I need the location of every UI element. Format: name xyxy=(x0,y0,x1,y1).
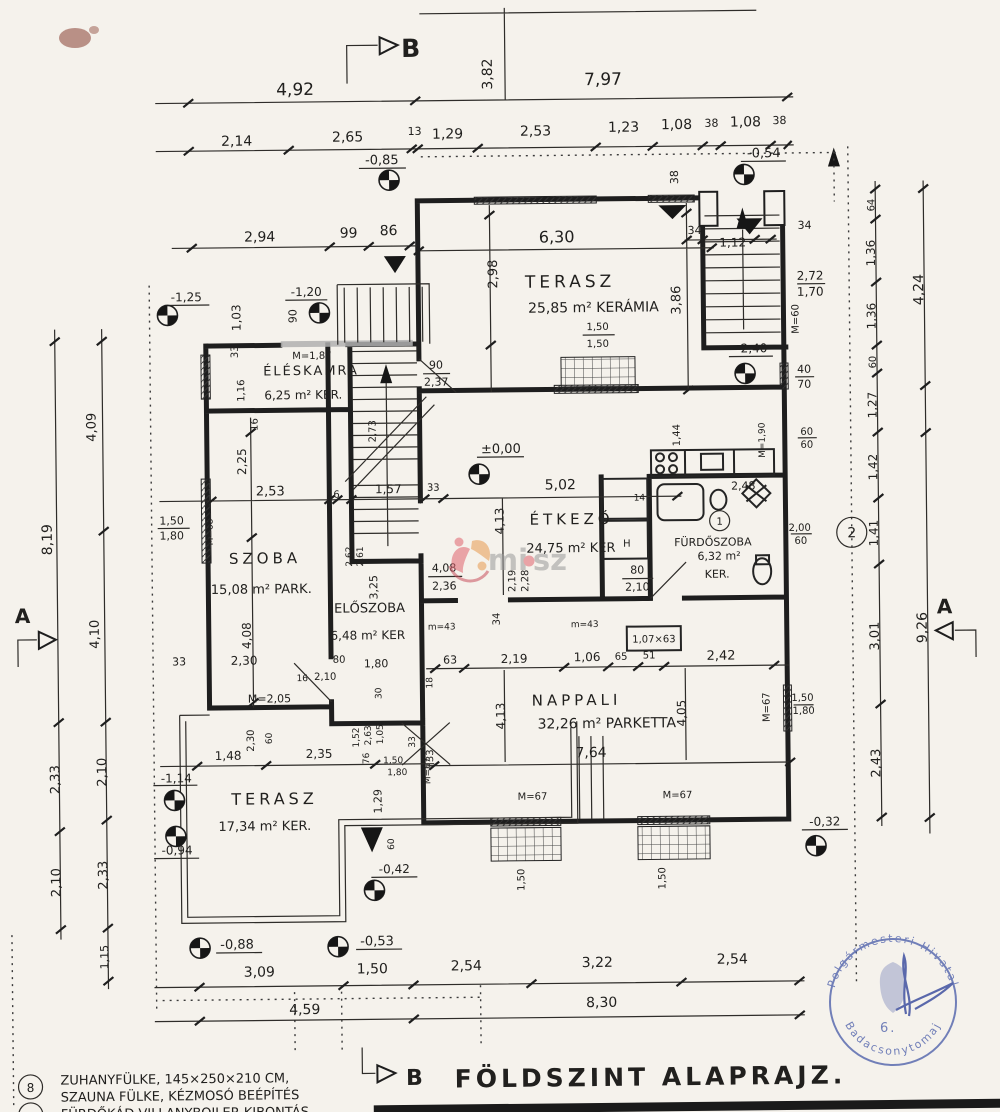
door-dim: 2,37 xyxy=(424,376,449,389)
level-label: -0,54 xyxy=(747,146,781,161)
level-label: -0,53 xyxy=(360,934,394,949)
dim-label: 1,44 xyxy=(672,424,683,446)
dim-label: 1,57 xyxy=(375,482,402,496)
dim-label: 5,02 xyxy=(545,477,576,493)
stove-burners xyxy=(656,453,677,473)
dim-label: 33 xyxy=(172,655,186,668)
dim-label: 4,24 xyxy=(911,274,927,305)
dim-label: 38 xyxy=(772,114,786,127)
dim-label: 14 xyxy=(634,493,646,503)
level-label: -0,32 xyxy=(809,814,840,828)
dim-label: 2,35 xyxy=(306,747,333,761)
dim-label: 4,10 xyxy=(88,620,103,649)
dim-label: 33 xyxy=(408,736,418,748)
dim-label: 13 xyxy=(407,125,421,138)
level-label: -0,42 xyxy=(379,862,410,876)
dim-label: 34 xyxy=(688,224,702,237)
window-dim: 1,50 xyxy=(516,869,527,891)
dim-label: 8,30 xyxy=(586,995,617,1011)
section-b-arrow-top xyxy=(380,37,398,54)
floorplan-drawing: B 3,82 4,92 7,97 2,14 2,65 13 1,29 2,53 … xyxy=(0,0,1000,1112)
dim-label: 18 xyxy=(425,677,435,689)
level-label: -0,85 xyxy=(365,153,399,168)
section-b-letter-top: B xyxy=(401,34,420,63)
window-dim: 1,80 xyxy=(159,529,184,542)
room-label-eloszoba: ELŐSZOBA xyxy=(334,600,405,617)
room-area-terasz-top: 25,85 m² KERÁMIA xyxy=(528,298,659,316)
dim-label: 86 xyxy=(380,223,398,239)
dim-label: 64 xyxy=(866,199,877,212)
window-dim: M=67 xyxy=(663,790,693,801)
dim-label: 1,08 xyxy=(730,114,761,130)
room-label-etkezo: ÉTKEZŐ xyxy=(529,508,613,529)
level-label: -2,40 xyxy=(736,341,767,355)
dim-label: 1,80 xyxy=(364,657,389,670)
dim-label: 2,48 xyxy=(731,479,756,492)
dim-label: 4,59 xyxy=(289,1002,320,1018)
dim-label: 2,33 xyxy=(96,861,111,890)
note-line-2: SZAUNA FÜLKE, KÉZMOSÓ BEÉPÍTÉS xyxy=(61,1086,300,1105)
dim-label: 3,25 xyxy=(367,575,380,600)
dim-label: 1,16 xyxy=(236,380,247,402)
door-dim: 2,00 xyxy=(789,523,811,534)
heater-label: H xyxy=(623,539,631,550)
dim-label: 33 xyxy=(427,483,440,494)
section-b-arrow-bottom xyxy=(377,1065,395,1082)
section-a-letter-right: A xyxy=(937,594,953,618)
room-label-nappali: NAPPALI xyxy=(532,691,622,710)
dim-label: M=67 xyxy=(423,757,433,784)
section-a-arrow-right xyxy=(936,622,953,639)
dim-label: 1,52 xyxy=(352,727,362,747)
dim-label: 90 xyxy=(286,309,299,323)
room-label-terasz-bottom: TERASZ xyxy=(230,789,318,809)
dim-label: 40 xyxy=(797,363,811,376)
dim-label: 1,42 xyxy=(866,454,880,481)
door-dim: 90 xyxy=(429,359,443,372)
dim-label: 1,06 xyxy=(574,650,601,664)
dim-label: 1,23 xyxy=(608,120,639,136)
dim-label: 2,42 xyxy=(707,649,736,664)
dim-label: 65 xyxy=(615,652,628,663)
window-dim: 1,50 xyxy=(586,322,608,333)
room-floor-furdoszoba: KER. xyxy=(705,568,730,581)
dim-label: 2,54 xyxy=(451,958,482,974)
dim-label: 38 xyxy=(704,117,718,130)
window-dim: M=67 xyxy=(518,792,548,803)
dim-label: 2,10 xyxy=(314,672,336,683)
dim-label: M=2,05 xyxy=(248,692,291,705)
scanned-floorplan-sheet: B 3,82 4,92 7,97 2,14 2,65 13 1,29 2,53 … xyxy=(0,0,1000,1112)
dim-label: m=43 xyxy=(428,622,456,632)
dim-label: 33 xyxy=(230,345,241,358)
dim-label: M=60 xyxy=(790,304,801,334)
dim-label: 2,62 xyxy=(345,546,355,566)
dim-label: 3,86 xyxy=(669,286,684,315)
window-dim: M=67 xyxy=(761,692,772,722)
stamp-crest xyxy=(880,962,906,1013)
dim-label: 2,30 xyxy=(246,729,257,751)
dim-label: 1,50 xyxy=(357,961,388,977)
dim-label: 2,36 xyxy=(432,579,457,592)
dim-label: 76 xyxy=(362,752,372,764)
dim-label: 2,61 xyxy=(356,546,366,566)
dim-label: 1,03 xyxy=(229,304,243,331)
room-label-terasz-top: TERASZ xyxy=(524,272,616,293)
dim-label: 99 xyxy=(340,225,358,241)
dim-label: 3,01 xyxy=(868,622,883,651)
dim-label: 7,97 xyxy=(584,70,622,90)
dim-label: 2,53 xyxy=(520,123,551,139)
dim-label: 1,70 xyxy=(797,285,824,299)
section-a-arrow-left xyxy=(39,632,56,649)
axis-number: 2 xyxy=(847,525,856,541)
dim-label: 2,43 xyxy=(869,749,884,778)
door-dim: 2,10 xyxy=(625,580,650,593)
dim-label: 2,54 xyxy=(717,951,748,967)
dim-label: 2,30 xyxy=(231,654,258,668)
dim-label: 80 xyxy=(333,655,346,666)
dim-label: 34 xyxy=(492,613,503,626)
dim-label: 1,05 xyxy=(376,724,386,744)
wall-post xyxy=(764,191,784,225)
dim-label: 1,07×63 xyxy=(632,634,675,645)
dim-label: 1,29 xyxy=(371,789,384,814)
dim-label: 1,29 xyxy=(432,126,463,142)
dim-label: 1,27 xyxy=(865,392,879,419)
dim-label: 60 xyxy=(265,732,275,744)
wall-post xyxy=(699,192,717,226)
stamp-number: 6. xyxy=(880,1021,896,1036)
dim-label: 2,63 xyxy=(364,725,374,745)
dim-label: 4,08 xyxy=(240,622,254,649)
dim-label: 16 xyxy=(296,674,308,684)
dim-label: 16 xyxy=(327,490,340,501)
dim-label: 1,48 xyxy=(215,749,242,763)
dim-label: 1,41 xyxy=(867,520,881,547)
dim-label: 8,19 xyxy=(40,524,56,555)
dim-label: 2,94 xyxy=(244,229,275,245)
room-area-eleskamra: 6,25 m² KER. xyxy=(264,388,342,403)
window-dim: 1,50 xyxy=(657,867,668,889)
dim-label: 70 xyxy=(797,378,811,391)
watermark-text-right: sz xyxy=(533,543,567,577)
dim-label: 2,19 xyxy=(501,652,528,666)
dim-label: 30 xyxy=(374,687,384,699)
dim-label: 3,09 xyxy=(244,964,275,980)
level-label: -0,94 xyxy=(161,843,192,857)
dim-label: 2,98 xyxy=(486,259,501,288)
scan-smudge xyxy=(59,26,99,48)
fixture-number: 1 xyxy=(716,517,722,528)
dim-label: 1,36 xyxy=(864,240,878,267)
dim-label: 2,65 xyxy=(332,129,363,145)
dim-label: 4,13 xyxy=(494,703,508,730)
dim-label: 7,64 xyxy=(575,745,606,761)
dim-label: 60 xyxy=(387,838,397,850)
dim-label: 9,26 xyxy=(915,612,931,643)
dim-label: 4,09 xyxy=(84,413,99,442)
dim-label: 2,10 xyxy=(95,758,110,787)
dim-label: 16 xyxy=(250,418,261,431)
dim-label: 2,14 xyxy=(221,134,252,150)
window-dim: M=68 xyxy=(206,518,216,545)
dim-label: 2,33 xyxy=(48,765,63,794)
dim-label: 4,13 xyxy=(492,508,506,535)
dim-label: M=1,90 xyxy=(758,422,768,458)
note-bubble-9-clipped xyxy=(19,1103,43,1112)
dim-label: 2,53 xyxy=(256,484,285,499)
dim-label: 4,92 xyxy=(276,80,314,100)
level-label: -1,20 xyxy=(291,285,322,299)
page-title: FÖLDSZINT ALAPRAJZ. xyxy=(455,1059,847,1093)
dim-label: 63 xyxy=(443,653,457,666)
window-dim: 1,50 xyxy=(159,514,184,527)
bathroom-fixtures xyxy=(601,477,772,651)
door-dim: 60 xyxy=(794,536,807,547)
dim-label: m=43 xyxy=(571,620,599,630)
room-label-eleskamra: ÉLÉSKAMRA xyxy=(263,362,359,379)
dim-label: 51 xyxy=(643,650,656,661)
watermark: mi sz xyxy=(450,538,567,581)
dim-label: 2,73 xyxy=(368,420,379,442)
room-area-eloszoba: 6,48 m² KER xyxy=(330,628,405,643)
dim-label: 2,10 xyxy=(49,868,64,897)
title-section-letter: B xyxy=(406,1066,423,1091)
next-drawing-edge xyxy=(374,1099,1000,1112)
room-area-terasz-bottom: 17,34 m² KER. xyxy=(218,819,311,835)
dim-label: 1,80 xyxy=(387,768,407,778)
room-area-szoba: 15,08 m² PARK. xyxy=(211,582,312,598)
dim-label: 2,25 xyxy=(235,448,249,475)
dim-label: 60 xyxy=(800,440,813,451)
dim-label: 60 xyxy=(868,356,879,369)
room-area-nappali: 32,26 m² PARKETTA xyxy=(537,715,676,732)
dim-label: 1,12 xyxy=(719,235,746,249)
window-dim: 1,50 xyxy=(791,693,813,704)
level-label: ±0,00 xyxy=(481,442,521,457)
dim-label: 1,08 xyxy=(661,117,692,133)
dim-label: 1,36 xyxy=(864,303,878,330)
room-label-szoba: SZOBA xyxy=(229,549,301,568)
dim-label: 4,05 xyxy=(675,700,689,727)
dim-label: 60 xyxy=(800,427,813,438)
dim-label: 34 xyxy=(797,219,811,232)
room-area-furdoszoba: 6,32 m² xyxy=(697,549,740,562)
dim-label: 6,30 xyxy=(539,227,575,246)
watermark-text-left: mi xyxy=(488,543,528,577)
municipal-stamp: Polgármesteri Hivatal Badacsonytomaj 6. xyxy=(825,932,961,1065)
dim-label: 1,50 xyxy=(383,756,403,766)
dim-label: 1,15 xyxy=(98,945,111,970)
window-dim: 1,80 xyxy=(792,706,814,717)
dim-label: 3,82 xyxy=(480,58,496,89)
level-label: -0,88 xyxy=(220,938,254,953)
level-label: -1,14 xyxy=(161,771,192,785)
door-dim: 80 xyxy=(630,563,644,576)
dim-label: 2,72 xyxy=(797,269,824,283)
section-a-letter-left: A xyxy=(15,604,31,628)
window-dim: 1,50 xyxy=(587,339,609,350)
dim-label: 3,22 xyxy=(582,955,613,971)
lintel-label: M=1,87 xyxy=(292,351,331,362)
note-number: 8 xyxy=(27,1081,35,1095)
note-line-1: ZUHANYFÜLKE, 145×250×210 CM, xyxy=(60,1069,289,1088)
level-label: -1,25 xyxy=(171,290,202,304)
room-label-furdoszoba: FÜRDŐSZOBA xyxy=(674,534,752,549)
dim-label: 38 xyxy=(668,170,681,184)
